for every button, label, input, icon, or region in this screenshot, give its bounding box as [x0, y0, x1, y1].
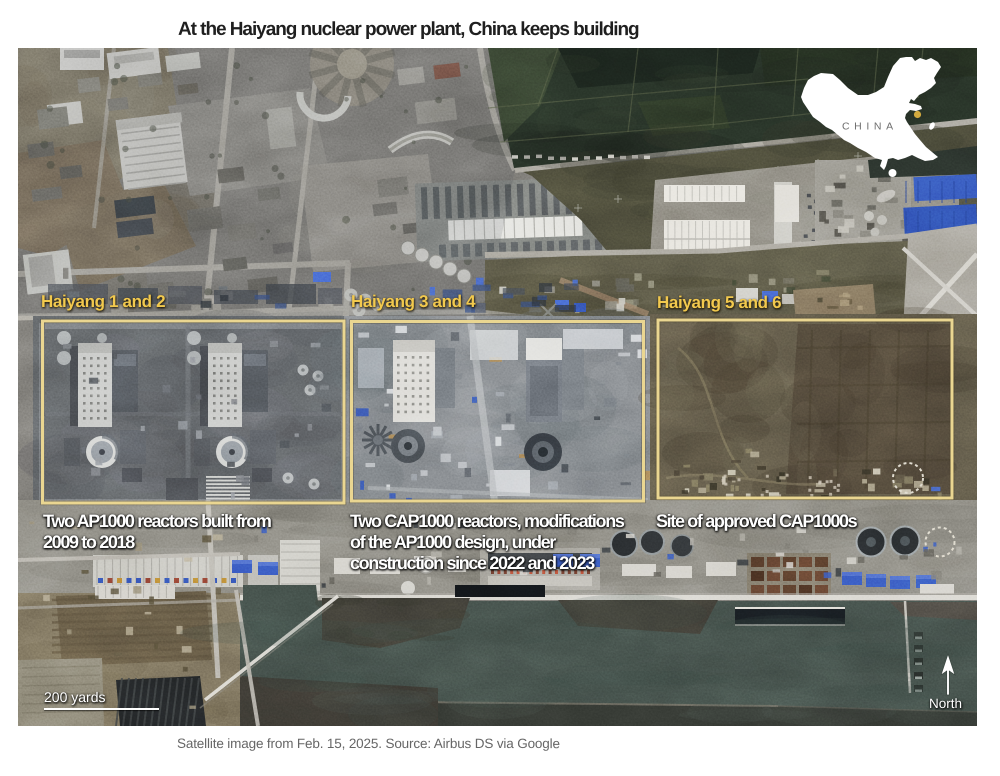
svg-text:CHINA: CHINA [842, 121, 898, 133]
